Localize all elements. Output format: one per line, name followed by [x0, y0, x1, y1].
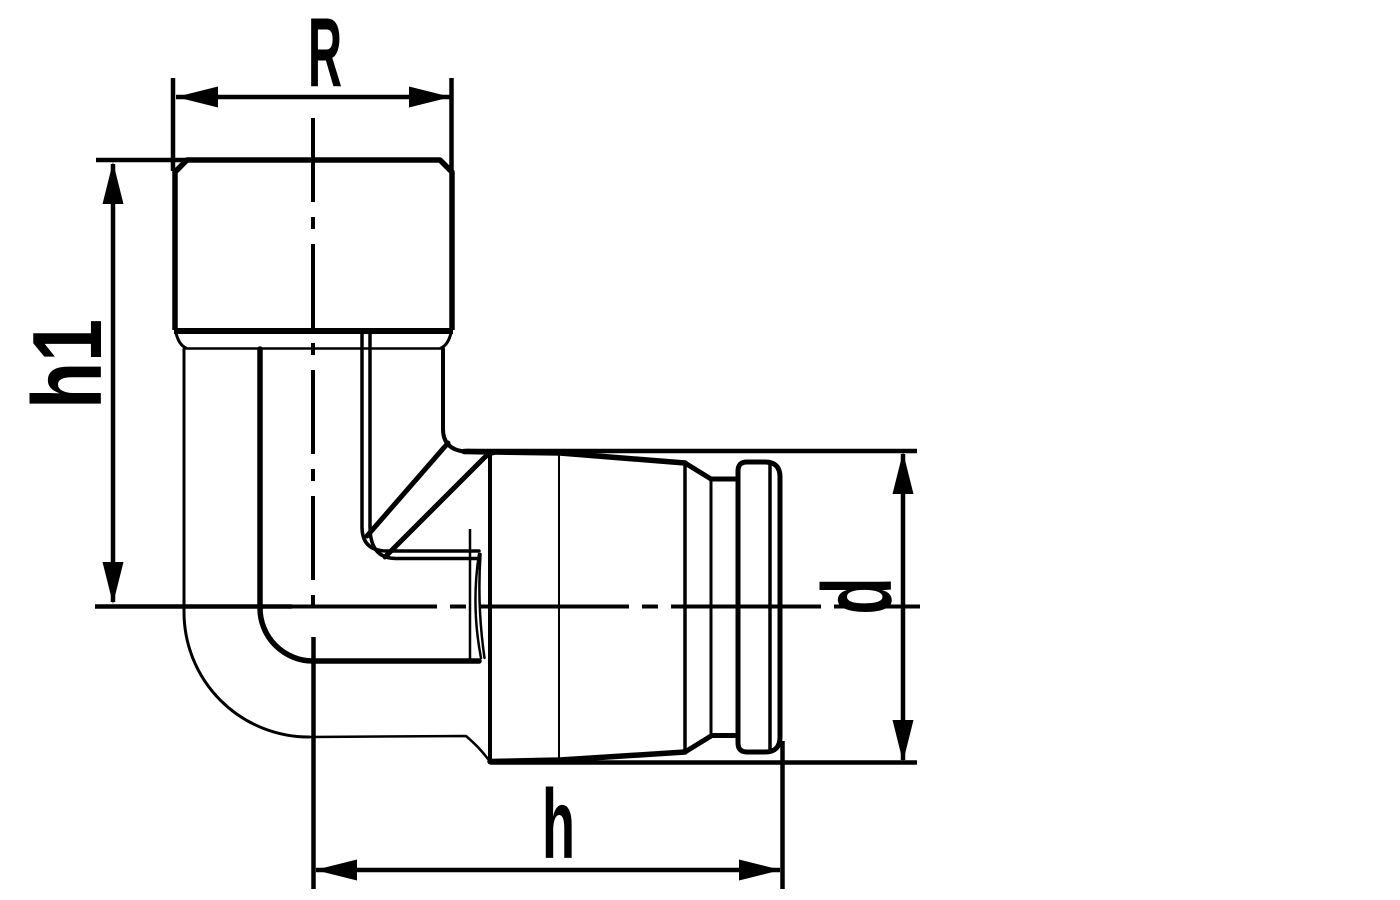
dimension-label-R: R	[308, 0, 342, 107]
crotch-edge	[443, 349, 464, 452]
dimension-label-h1: h1	[12, 319, 122, 409]
dimension-label-d: d	[802, 578, 912, 615]
arrowhead-bottom	[103, 562, 124, 604]
cone-transition-edge-2	[385, 453, 494, 558]
dimension-h1: h1	[12, 160, 292, 607]
fitting-outline	[174, 160, 780, 762]
arrowhead-top	[893, 452, 914, 494]
technical-drawing-svg: R h1 h d	[0, 0, 1400, 900]
elbow-outer-silhouette	[184, 349, 309, 737]
arrowhead-right	[739, 860, 781, 881]
arrowhead-top	[103, 162, 124, 204]
arrowhead-left	[315, 860, 357, 881]
arrowhead-right	[409, 87, 451, 108]
arrowhead-bottom	[893, 720, 914, 762]
socket-chamfer-bottom	[685, 736, 711, 752]
socket-body-bottom-edge	[490, 752, 685, 762]
cap-flare-right	[441, 333, 451, 348]
centerlines	[95, 118, 920, 607]
socket-chamfer-top	[685, 463, 711, 479]
arrowhead-left	[176, 87, 218, 108]
dimension-label-h: h	[542, 769, 575, 879]
inner-corner-line-inner	[370, 333, 479, 559]
drawing-canvas: R h1 h d	[0, 0, 1400, 900]
cap-flare-left	[176, 333, 186, 348]
cone-transition-edge-1	[367, 443, 448, 536]
elbow-bottom-thin-line	[309, 736, 488, 759]
